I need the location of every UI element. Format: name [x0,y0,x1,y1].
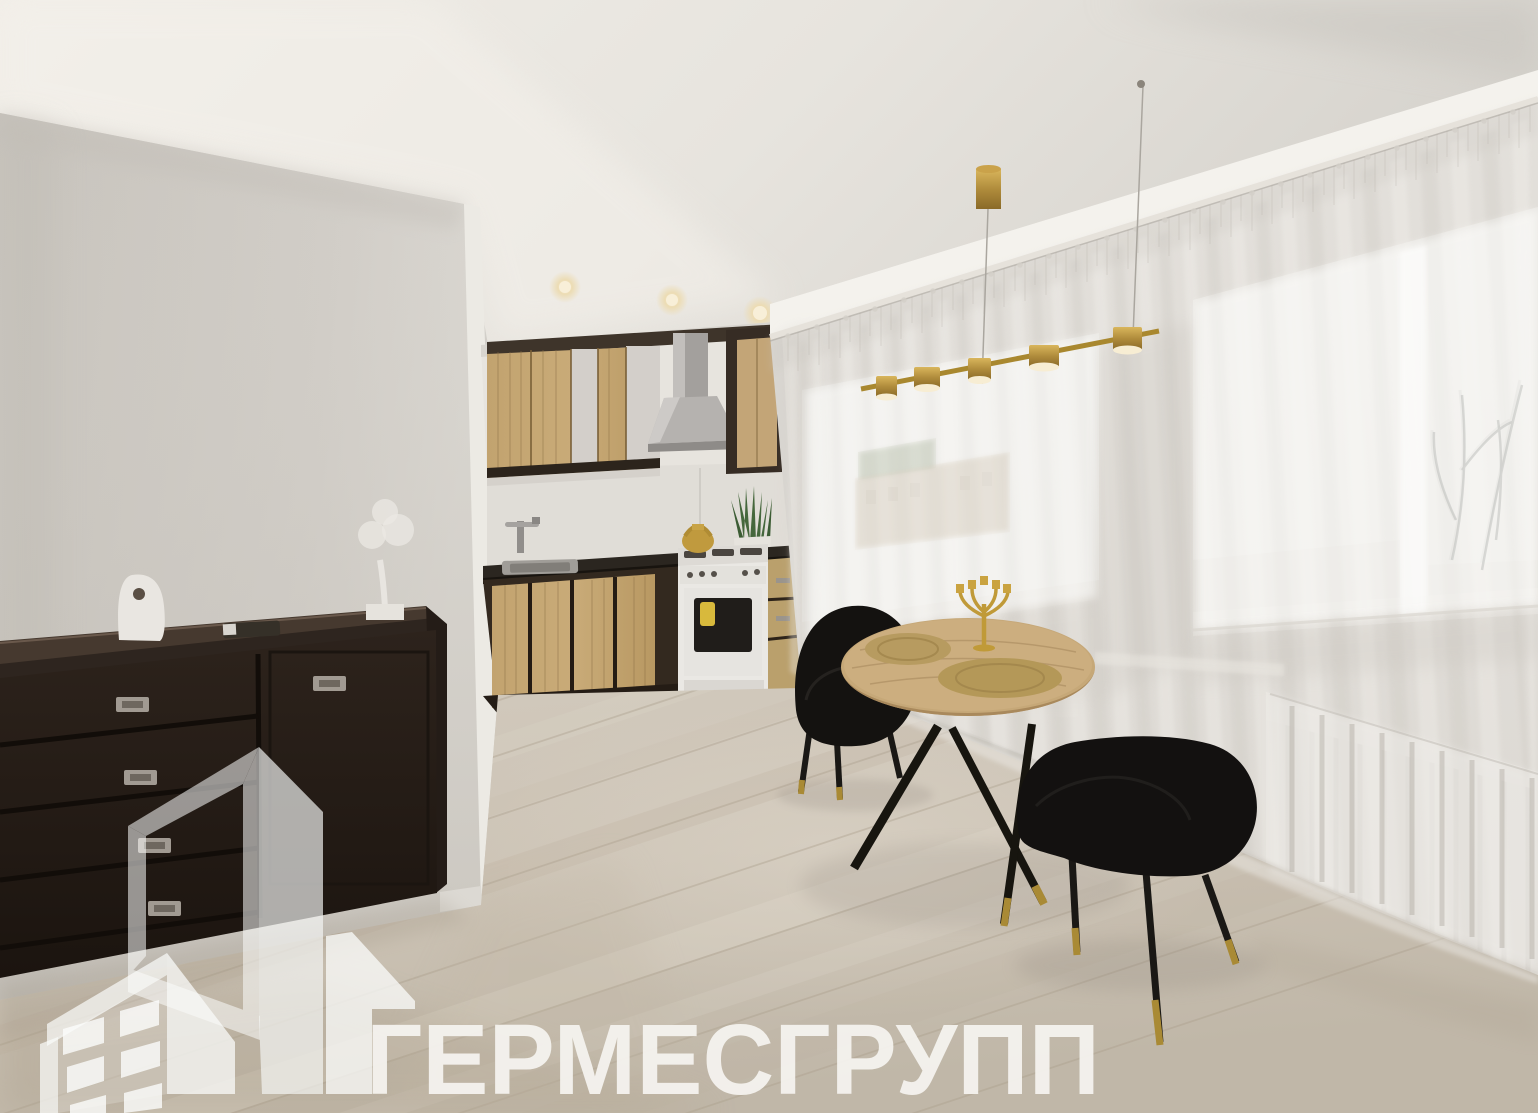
svg-text:ГЕРМЕСГРУПП: ГЕРМЕСГРУПП [366,1004,1100,1113]
